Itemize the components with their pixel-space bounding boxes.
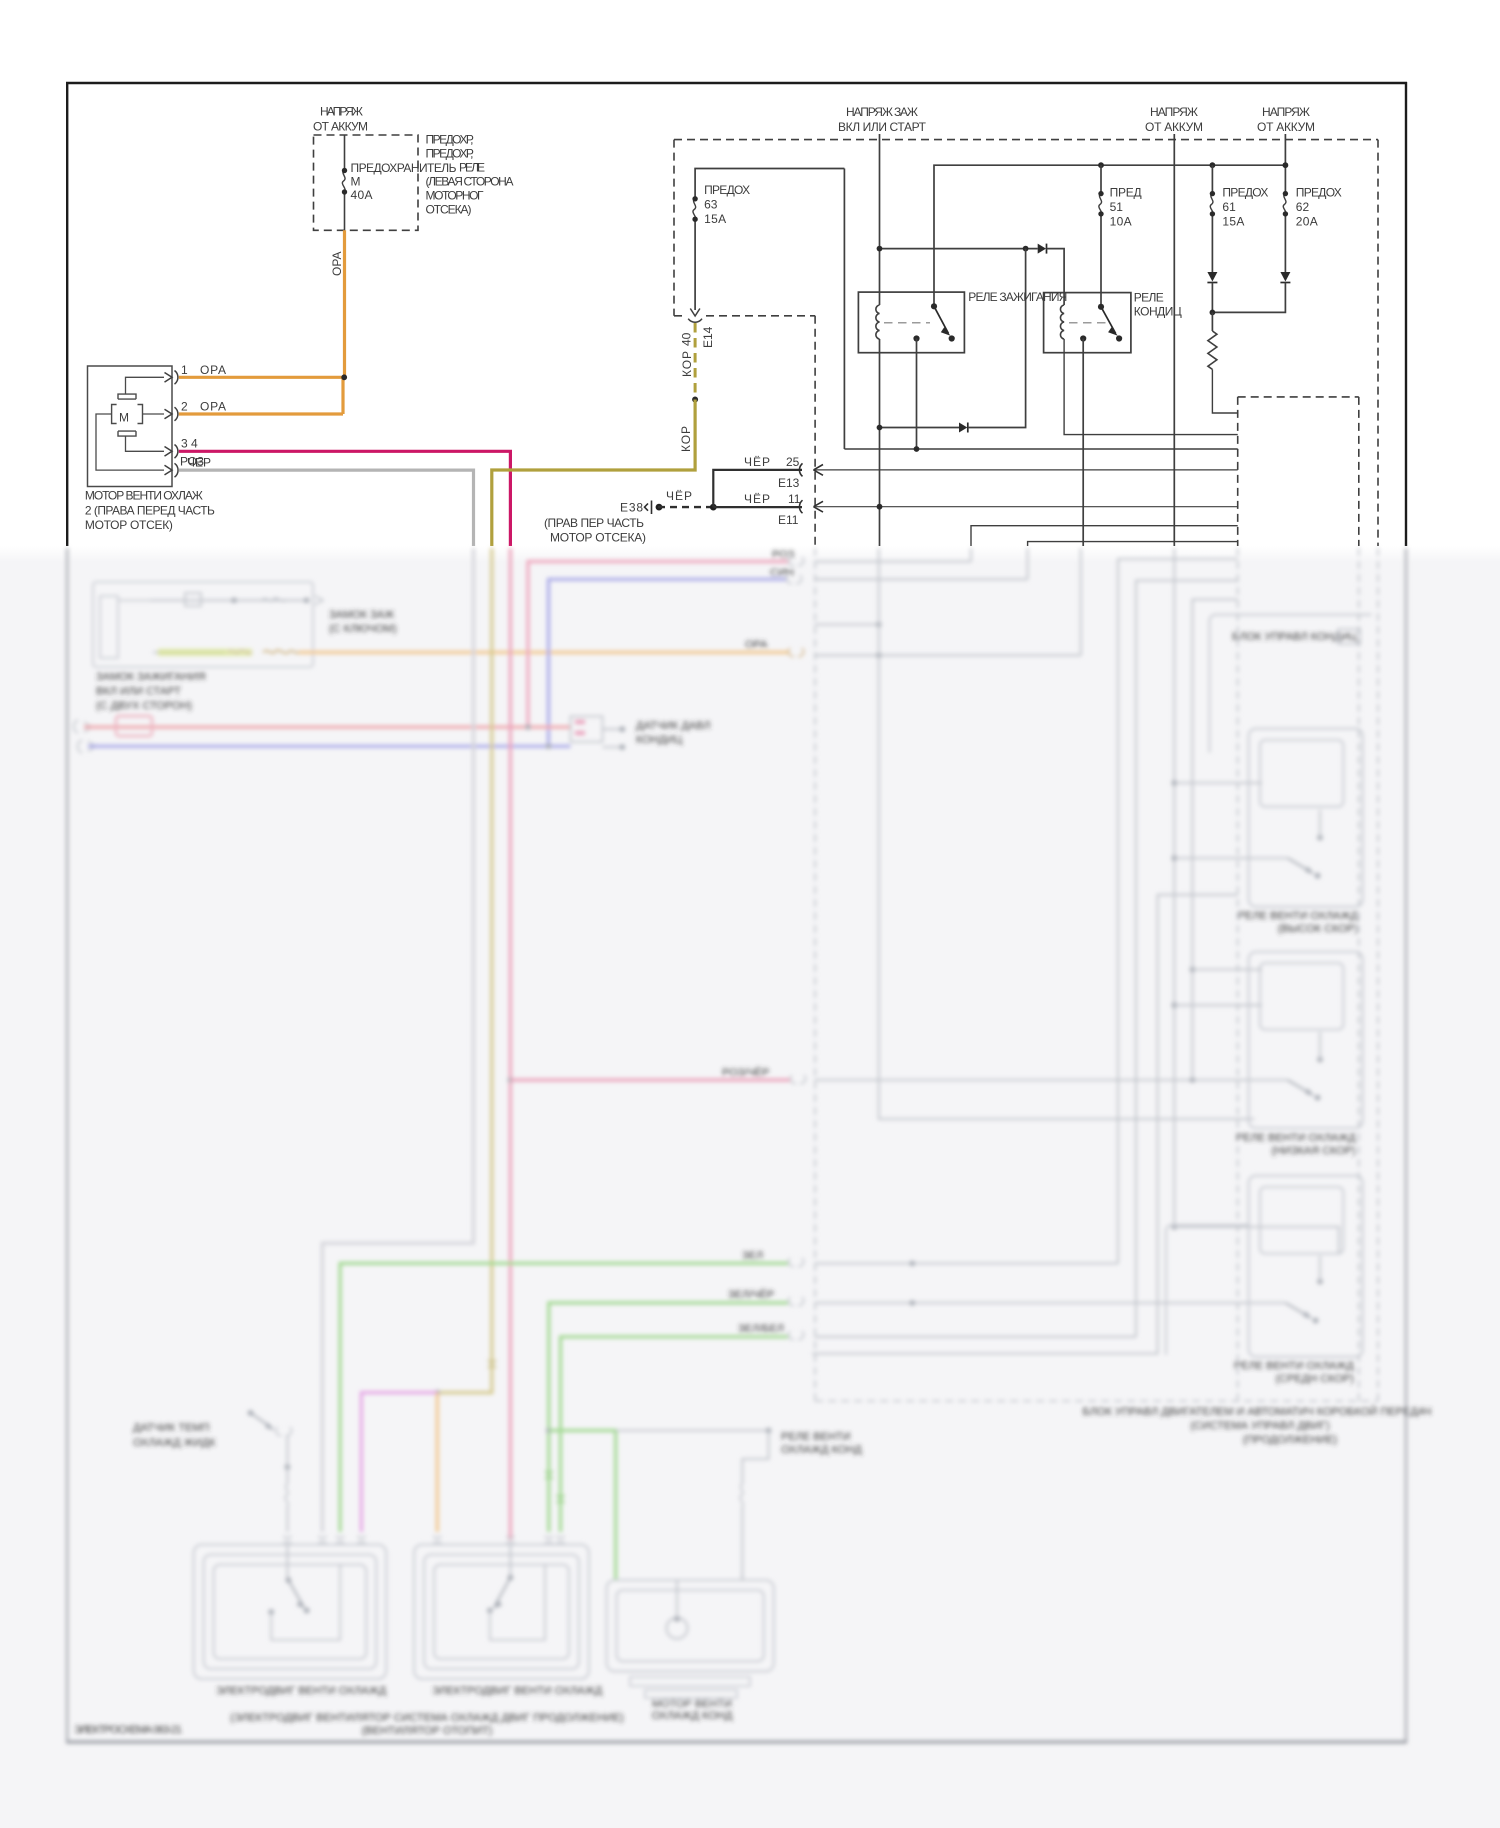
svg-text:ЗАМОК ЗАЖИГАНИЯ: ЗАМОК ЗАЖИГАНИЯ (96, 671, 206, 683)
svg-text:НАПРЯЖ: НАПРЯЖ (320, 105, 363, 119)
svg-text:ОРА: ОРА (745, 639, 768, 651)
svg-text:1: 1 (181, 363, 188, 377)
svg-text:БЛОК УПРАВЛ ДВИГАТЕЛЕМ И АВТОМ: БЛОК УПРАВЛ ДВИГАТЕЛЕМ И АВТОМАТИЧ КОРОБ… (1082, 1405, 1431, 1418)
svg-text:11: 11 (788, 492, 801, 506)
svg-text:ЧЕР: ЧЕР (187, 456, 211, 470)
svg-text:(С ДВУХ СТОРОН): (С ДВУХ СТОРОН) (96, 700, 192, 712)
svg-text:4: 4 (191, 437, 198, 451)
svg-text:РЕЛЕ ВЕНТИ ОХЛАЖД: РЕЛЕ ВЕНТИ ОХЛАЖД (1238, 910, 1359, 922)
svg-text:ЗЕЛ: ЗЕЛ (742, 1250, 763, 1262)
svg-text:(СРЕДН СКОР): (СРЕДН СКОР) (1275, 1373, 1354, 1385)
svg-text:ОРА: ОРА (330, 251, 344, 276)
svg-text:10А: 10А (1110, 215, 1132, 229)
svg-text:ПРЕДОХ: ПРЕДОХ (1296, 186, 1342, 200)
svg-text:КОНДИЦ: КОНДИЦ (636, 734, 682, 746)
svg-text:РЕЛЕ ВЕНТИ ОХЛАЖД: РЕЛЕ ВЕНТИ ОХЛАЖД (1234, 1360, 1355, 1372)
svg-text:(С КЛЮЧОМ): (С КЛЮЧОМ) (329, 623, 397, 635)
svg-text:РОЗ/ЧЁР: РОЗ/ЧЁР (722, 1067, 769, 1079)
svg-text:Е11: Е11 (778, 513, 799, 527)
svg-text:(ПРОДОЛЖЕНИЕ): (ПРОДОЛЖЕНИЕ) (1243, 1434, 1337, 1446)
svg-text:РОЗ: РОЗ (772, 549, 795, 561)
svg-text:ВКЛ ИЛИ СТАРТ: ВКЛ ИЛИ СТАРТ (96, 686, 181, 698)
svg-text:25: 25 (786, 455, 800, 469)
svg-text:2: 2 (181, 400, 188, 414)
svg-text:(ЛЕВАЯ СТОРОНА: (ЛЕВАЯ СТОРОНА (426, 175, 514, 189)
svg-text:ЭЛЕКТРОДВИГ ВЕНТИ ОХЛАЖД: ЭЛЕКТРОДВИГ ВЕНТИ ОХЛАЖД (216, 1685, 387, 1697)
svg-text:40А: 40А (351, 188, 373, 202)
svg-text:М: М (351, 175, 361, 189)
svg-text:ОТСЕКА): ОТСЕКА) (426, 203, 472, 217)
svg-text:Е13: Е13 (778, 476, 800, 490)
svg-text:ОРА: ОРА (200, 363, 226, 377)
svg-text:15А: 15А (704, 212, 726, 226)
svg-text:ОТ АККУМ: ОТ АККУМ (313, 120, 368, 134)
svg-text:ЗЕЛ/БЕЛ: ЗЕЛ/БЕЛ (738, 1323, 784, 1335)
svg-text:2 (ПРАВА ПЕРЕД ЧАСТЬ: 2 (ПРАВА ПЕРЕД ЧАСТЬ (85, 504, 215, 518)
svg-text:Е14: Е14 (701, 326, 715, 348)
svg-text:ПРЕДОХ: ПРЕДОХ (704, 183, 750, 197)
svg-text:ЗЕЛ/ЧЁР: ЗЕЛ/ЧЁР (728, 1289, 774, 1301)
svg-text:63: 63 (704, 198, 718, 212)
svg-text:РЕЛЕ ВЕНТИ: РЕЛЕ ВЕНТИ (781, 1431, 851, 1443)
svg-text:20А: 20А (1296, 215, 1318, 229)
svg-text:ОХЛАЖД КОНД: ОХЛАЖД КОНД (652, 1710, 733, 1722)
svg-text:(ПРАВ ПЕР ЧАСТЬ: (ПРАВ ПЕР ЧАСТЬ (544, 516, 644, 530)
svg-text:КОР: КОР (680, 351, 694, 377)
svg-text:51: 51 (1110, 200, 1124, 214)
svg-text:РЕЛЕ: РЕЛЕ (459, 161, 485, 175)
svg-text:М: М (119, 411, 129, 425)
svg-text:(СИСТЕМА УПРАВЛ ДВИГ): (СИСТЕМА УПРАВЛ ДВИГ) (1190, 1420, 1329, 1432)
svg-text:ОТ АККУМ: ОТ АККУМ (1145, 120, 1203, 134)
svg-text:(ВЫСОК СКОР): (ВЫСОК СКОР) (1278, 923, 1358, 935)
svg-text:НАПРЯЖ: НАПРЯЖ (1150, 105, 1198, 119)
svg-text:СИН: СИН (770, 567, 794, 579)
svg-text:ОХЛАЖД КОНД: ОХЛАЖД КОНД (781, 1444, 862, 1456)
svg-text:15А: 15А (1222, 215, 1244, 229)
svg-text:МОТОРНОГ: МОТОРНОГ (426, 189, 485, 203)
svg-text:ПРЕДОХР,: ПРЕДОХР, (426, 147, 474, 161)
svg-text:ЧЁР: ЧЁР (744, 455, 770, 469)
svg-text:РЕЛЕ: РЕЛЕ (1134, 291, 1164, 305)
svg-text:МОТОР ОТСЕК): МОТОР ОТСЕК) (85, 518, 173, 532)
svg-text:ЭЛЕКТРОСХЕМА 063-21: ЭЛЕКТРОСХЕМА 063-21 (74, 1724, 182, 1736)
svg-text:ОХЛАЖД ЖИДК: ОХЛАЖД ЖИДК (133, 1437, 216, 1449)
svg-text:ЭЛЕКТРОДВИГ ВЕНТИ ОХЛАЖД: ЭЛЕКТРОДВИГ ВЕНТИ ОХЛАЖД (432, 1685, 603, 1697)
svg-text:(ЭЛЕКТРОДВИГ ВЕНТИЛЯТОР СИСТЕМ: (ЭЛЕКТРОДВИГ ВЕНТИЛЯТОР СИСТЕМА ОХЛАЖД Д… (230, 1712, 624, 1724)
svg-text:(НИЗКАЯ СКОР): (НИЗКАЯ СКОР) (1271, 1145, 1356, 1157)
svg-text:МОТОР ВЕНТИ ОХЛАЖ: МОТОР ВЕНТИ ОХЛАЖ (85, 489, 203, 503)
svg-text:ВКЛ ИЛИ СТАРТ: ВКЛ ИЛИ СТАРТ (838, 120, 927, 134)
svg-text:КОР: КОР (679, 426, 693, 452)
svg-text:НАПРЯЖ: НАПРЯЖ (1262, 105, 1310, 119)
svg-text:КОНДИЦ: КОНДИЦ (1134, 305, 1182, 319)
svg-text:3: 3 (181, 437, 188, 451)
svg-text:62: 62 (1296, 200, 1310, 214)
svg-text:61: 61 (1222, 200, 1236, 214)
svg-text:ПРЕДОХРАНИТЕЛЬ: ПРЕДОХРАНИТЕЛЬ (351, 161, 457, 175)
svg-text:МОТОР ВЕНТИ: МОТОР ВЕНТИ (652, 1698, 732, 1710)
svg-text:(ВЕНТИЛЯТОР ОТОПИТ): (ВЕНТИЛЯТОР ОТОПИТ) (362, 1725, 493, 1737)
svg-text:ОРА: ОРА (200, 400, 226, 414)
svg-text:ЧЁР: ЧЁР (744, 492, 770, 506)
svg-text:ОТ АККУМ: ОТ АККУМ (1257, 120, 1315, 134)
svg-text:РЕЛЕ ВЕНТИ ОХЛАЖД: РЕЛЕ ВЕНТИ ОХЛАЖД (1236, 1132, 1357, 1144)
svg-text:ЧЁР: ЧЁР (666, 489, 692, 503)
svg-text:ЗАМОК ЗАЖ: ЗАМОК ЗАЖ (329, 609, 394, 621)
svg-text:ПРЕД: ПРЕД (1110, 186, 1142, 200)
svg-text:Е38: Е38 (620, 501, 643, 515)
svg-text:НАПРЯЖ ЗАЖ: НАПРЯЖ ЗАЖ (846, 105, 918, 119)
svg-text:ДАТЧИК ДАВЛ: ДАТЧИК ДАВЛ (636, 720, 711, 732)
svg-text:ПРЕДОХ: ПРЕДОХ (1222, 186, 1268, 200)
svg-text:ДАТЧИК ТЕМП: ДАТЧИК ТЕМП (133, 1422, 210, 1434)
svg-text:ПРЕДОХР,: ПРЕДОХР, (426, 133, 474, 147)
svg-text:40: 40 (680, 332, 694, 346)
svg-text:МОТОР ОТСЕКА): МОТОР ОТСЕКА) (550, 531, 646, 545)
